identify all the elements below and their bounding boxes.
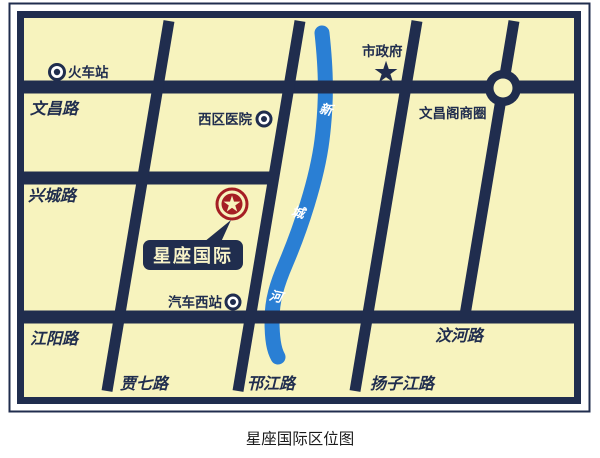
- road-label-wenhe: 汶河路: [435, 327, 485, 345]
- roundabout-inner: [494, 79, 513, 98]
- business-district-label: 文昌阁商圈: [419, 105, 487, 121]
- road-label-jiangyang: 江阳路: [30, 330, 80, 348]
- project-marker: ★: [217, 189, 247, 219]
- road-label-jiaqi: 贾七路: [120, 375, 170, 393]
- road-label-hanjiang: 邗江路: [247, 375, 297, 393]
- city-government-label: 市政府: [362, 43, 403, 59]
- road-label-wenchang: 文昌路: [30, 100, 80, 118]
- location-map-page: ★ ★ 星座国际 火车站 西区医院 汽车西站 市政府 文昌阁商圈 文昌路 兴城路…: [0, 0, 600, 458]
- hospital-icon-dot: [261, 116, 267, 122]
- government-star-icon: ★: [374, 57, 398, 87]
- project-badge-label: 星座国际: [153, 245, 233, 266]
- hospital-label: 西区医院: [198, 111, 252, 127]
- bus-station-label: 汽车西站: [168, 294, 222, 310]
- project-star-icon: ★: [223, 195, 240, 216]
- road-label-xingcheng: 兴城路: [28, 187, 78, 205]
- train-station-label: 火车站: [68, 64, 109, 80]
- bus-station-icon-dot: [230, 299, 236, 305]
- map-caption: 星座国际区位图: [246, 430, 355, 448]
- train-station-icon-dot: [54, 69, 60, 75]
- map-canvas: ★ ★ 星座国际 火车站 西区医院 汽车西站 市政府 文昌阁商圈 文昌路 兴城路…: [0, 0, 600, 458]
- road-label-yangzijiang: 扬子江路: [370, 375, 436, 393]
